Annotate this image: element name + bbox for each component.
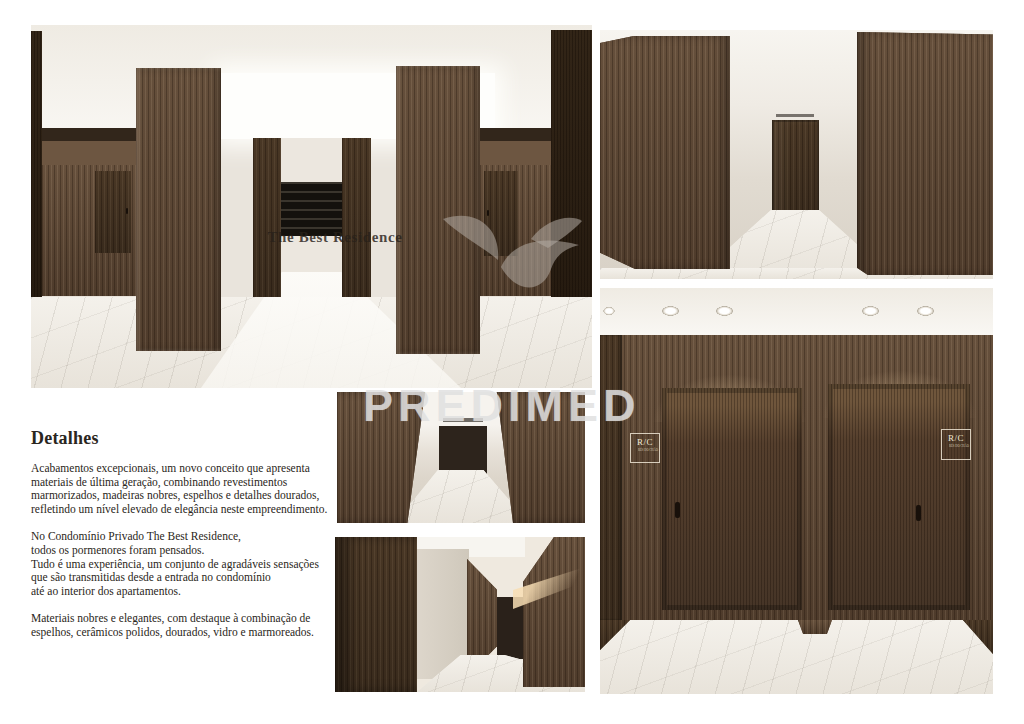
elevator-door-1-handle [675, 502, 680, 518]
elevator-wall-foot-center [798, 620, 832, 634]
lobby-back-right-panel [342, 138, 371, 297]
corridor-left-wood-wall [600, 36, 730, 269]
render-entrance-lobby: The Best Residence [31, 25, 592, 388]
elevator-marble-floor [600, 620, 993, 694]
elevator-niche-2 [828, 384, 970, 610]
floor-sign-rc-right-label: R/C [942, 433, 970, 444]
details-text-block: Detalhes Acabamentos excepcionais, um no… [31, 428, 343, 654]
floor-sign-rc-left-subtext: RÉS DO CHÃO [638, 448, 652, 451]
brochure-page: The Best Residence [0, 0, 1024, 724]
corridor2-right-wood-wall [523, 537, 585, 687]
lobby-left-pillar [136, 68, 221, 351]
render-corridor-long [600, 30, 993, 279]
floor-sign-rc-right-subtext: RÉS DO CHÃO [949, 444, 963, 447]
floor-sign-rc-left: R/C RÉS DO CHÃO [630, 433, 660, 463]
ceiling-light-1 [602, 306, 616, 316]
lobby-left-edge-panel [31, 31, 42, 297]
elevator-niche-1 [662, 388, 802, 610]
residence-name-overlay: The Best Residence [226, 229, 444, 246]
ceiling-light-4 [860, 305, 881, 317]
render-corridor-small-top [337, 392, 585, 523]
corridor-end-door [772, 120, 819, 218]
corridor2-end-door [497, 597, 525, 659]
details-heading: Detalhes [31, 428, 343, 449]
ceiling-light-2 [660, 305, 681, 317]
details-paragraph-1: Acabamentos excepcionais, um novo concei… [31, 462, 343, 516]
corridor1-end-wall [439, 426, 487, 474]
corridor-right-wood-wall [857, 32, 993, 275]
render-elevator-lobby: R/C RÉS DO CHÃO R/C RÉS DO CHÃO [600, 288, 993, 694]
corridor1-ceiling-detail [443, 418, 483, 422]
render-corridor-small-bottom [335, 537, 585, 692]
floor-sign-rc-right: R/C RÉS DO CHÃO [941, 429, 971, 460]
lobby-right-wall-upper [480, 128, 551, 165]
corridor-end-detail [776, 114, 814, 117]
lobby-left-door-handle [126, 208, 128, 214]
floor-sign-rc-left-label: R/C [631, 437, 659, 448]
lobby-back-left-panel [253, 138, 281, 297]
ceiling-light-5 [915, 305, 936, 317]
elevator-door-2-handle [916, 505, 921, 521]
elevator-left-side-wall [600, 335, 622, 620]
ceiling-light-3 [714, 305, 735, 317]
details-paragraph-2: No Condomínio Privado The Best Residence… [31, 530, 343, 598]
corridor2-left-wood-wall [335, 537, 417, 692]
details-paragraph-3: Materiais nobres e elegantes, com destaq… [31, 612, 343, 639]
lobby-left-wall-upper [42, 128, 136, 165]
bird-feather-watermark-icon [431, 205, 583, 307]
